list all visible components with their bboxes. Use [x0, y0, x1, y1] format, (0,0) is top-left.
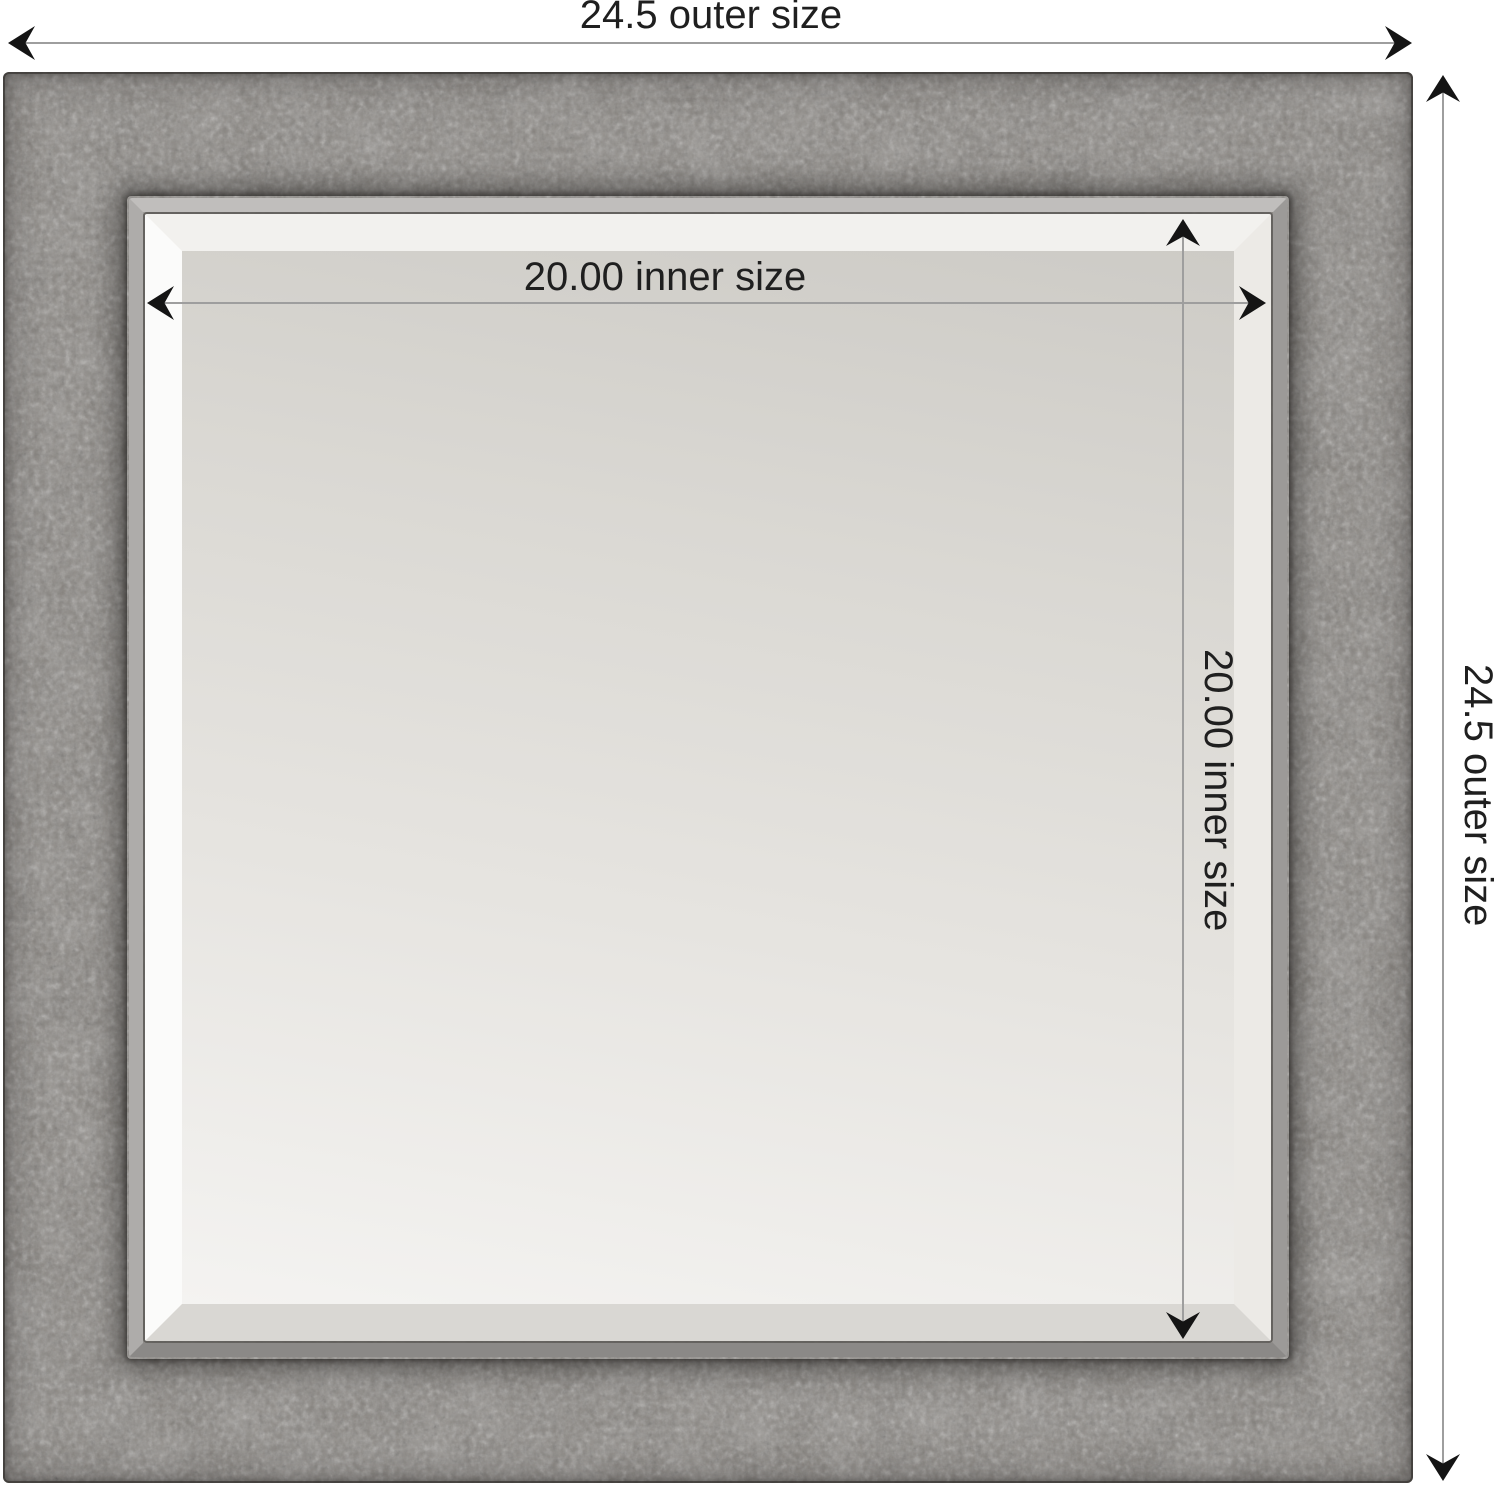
- inner-width-label: 20.00 inner size: [147, 255, 1183, 299]
- inner-height-label: 20.00 inner size: [1196, 598, 1240, 982]
- outer-width-label: 24.5 outer size: [10, 0, 1412, 37]
- dimension-diagram: 24.5 outer size 20.00 inner size 24.5 ou…: [0, 0, 1500, 1487]
- outer-height-label: 24.5 outer size: [1456, 616, 1500, 974]
- outer-height-dimension: [1426, 75, 1460, 1481]
